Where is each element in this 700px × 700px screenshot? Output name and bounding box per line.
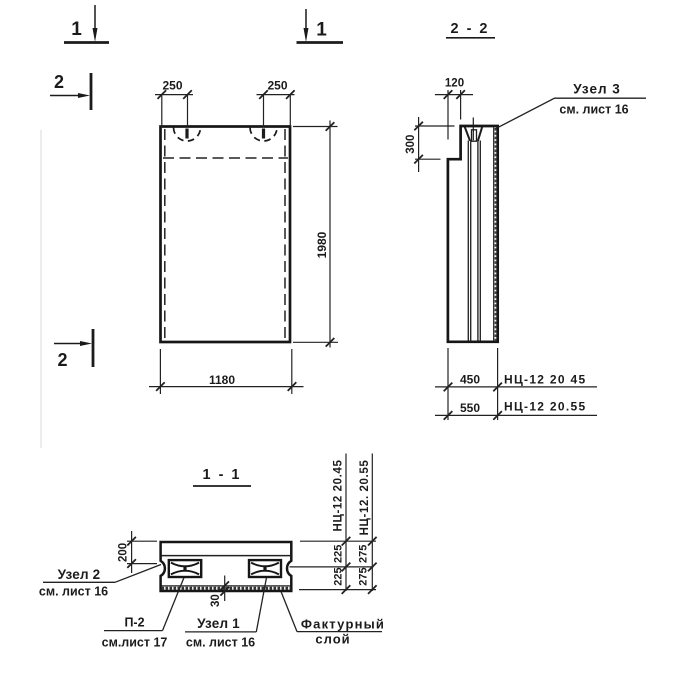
svg-text:1 - 1: 1 - 1 (202, 467, 241, 483)
svg-text:см.лист 17: см.лист 17 (102, 636, 168, 650)
svg-text:275: 275 (358, 545, 370, 563)
svg-text:275: 275 (358, 567, 370, 585)
svg-text:300: 300 (405, 135, 417, 154)
svg-text:1180: 1180 (209, 373, 235, 387)
svg-text:Узел 1: Узел 1 (197, 616, 240, 631)
svg-text:слой: слой (315, 632, 350, 647)
svg-text:Узел 2: Узел 2 (58, 567, 101, 582)
svg-text:30: 30 (210, 594, 222, 607)
svg-text:2: 2 (54, 72, 64, 92)
svg-text:1: 1 (316, 20, 327, 41)
svg-text:450: 450 (460, 372, 480, 386)
svg-text:см. лист 16: см. лист 16 (186, 636, 255, 650)
svg-text:2: 2 (57, 350, 67, 370)
svg-text:550: 550 (460, 401, 480, 415)
svg-text:250: 250 (267, 79, 287, 93)
svg-text:см. лист 16: см. лист 16 (559, 103, 628, 117)
svg-text:200: 200 (118, 543, 130, 562)
svg-text:120: 120 (445, 78, 464, 90)
svg-text:250: 250 (162, 79, 182, 93)
svg-text:НЦ-12 20 45: НЦ-12 20 45 (504, 373, 586, 387)
svg-text:Узел 3: Узел 3 (573, 82, 621, 97)
svg-text:см. лист 16: см. лист 16 (39, 585, 108, 599)
svg-text:НЦ-12 20.55: НЦ-12 20.55 (504, 400, 586, 414)
svg-text:1: 1 (71, 19, 82, 40)
svg-text:1980: 1980 (315, 231, 329, 258)
svg-text:НЦ-12 20.45: НЦ-12 20.45 (333, 460, 345, 532)
svg-text:2 - 2: 2 - 2 (450, 21, 489, 37)
svg-text:225: 225 (332, 567, 344, 585)
svg-text:225: 225 (332, 545, 344, 563)
svg-text:НЦ-12. 20.55: НЦ-12. 20.55 (359, 460, 371, 536)
svg-text:П-2: П-2 (124, 616, 144, 630)
svg-text:Фактурный: Фактурный (301, 617, 385, 632)
